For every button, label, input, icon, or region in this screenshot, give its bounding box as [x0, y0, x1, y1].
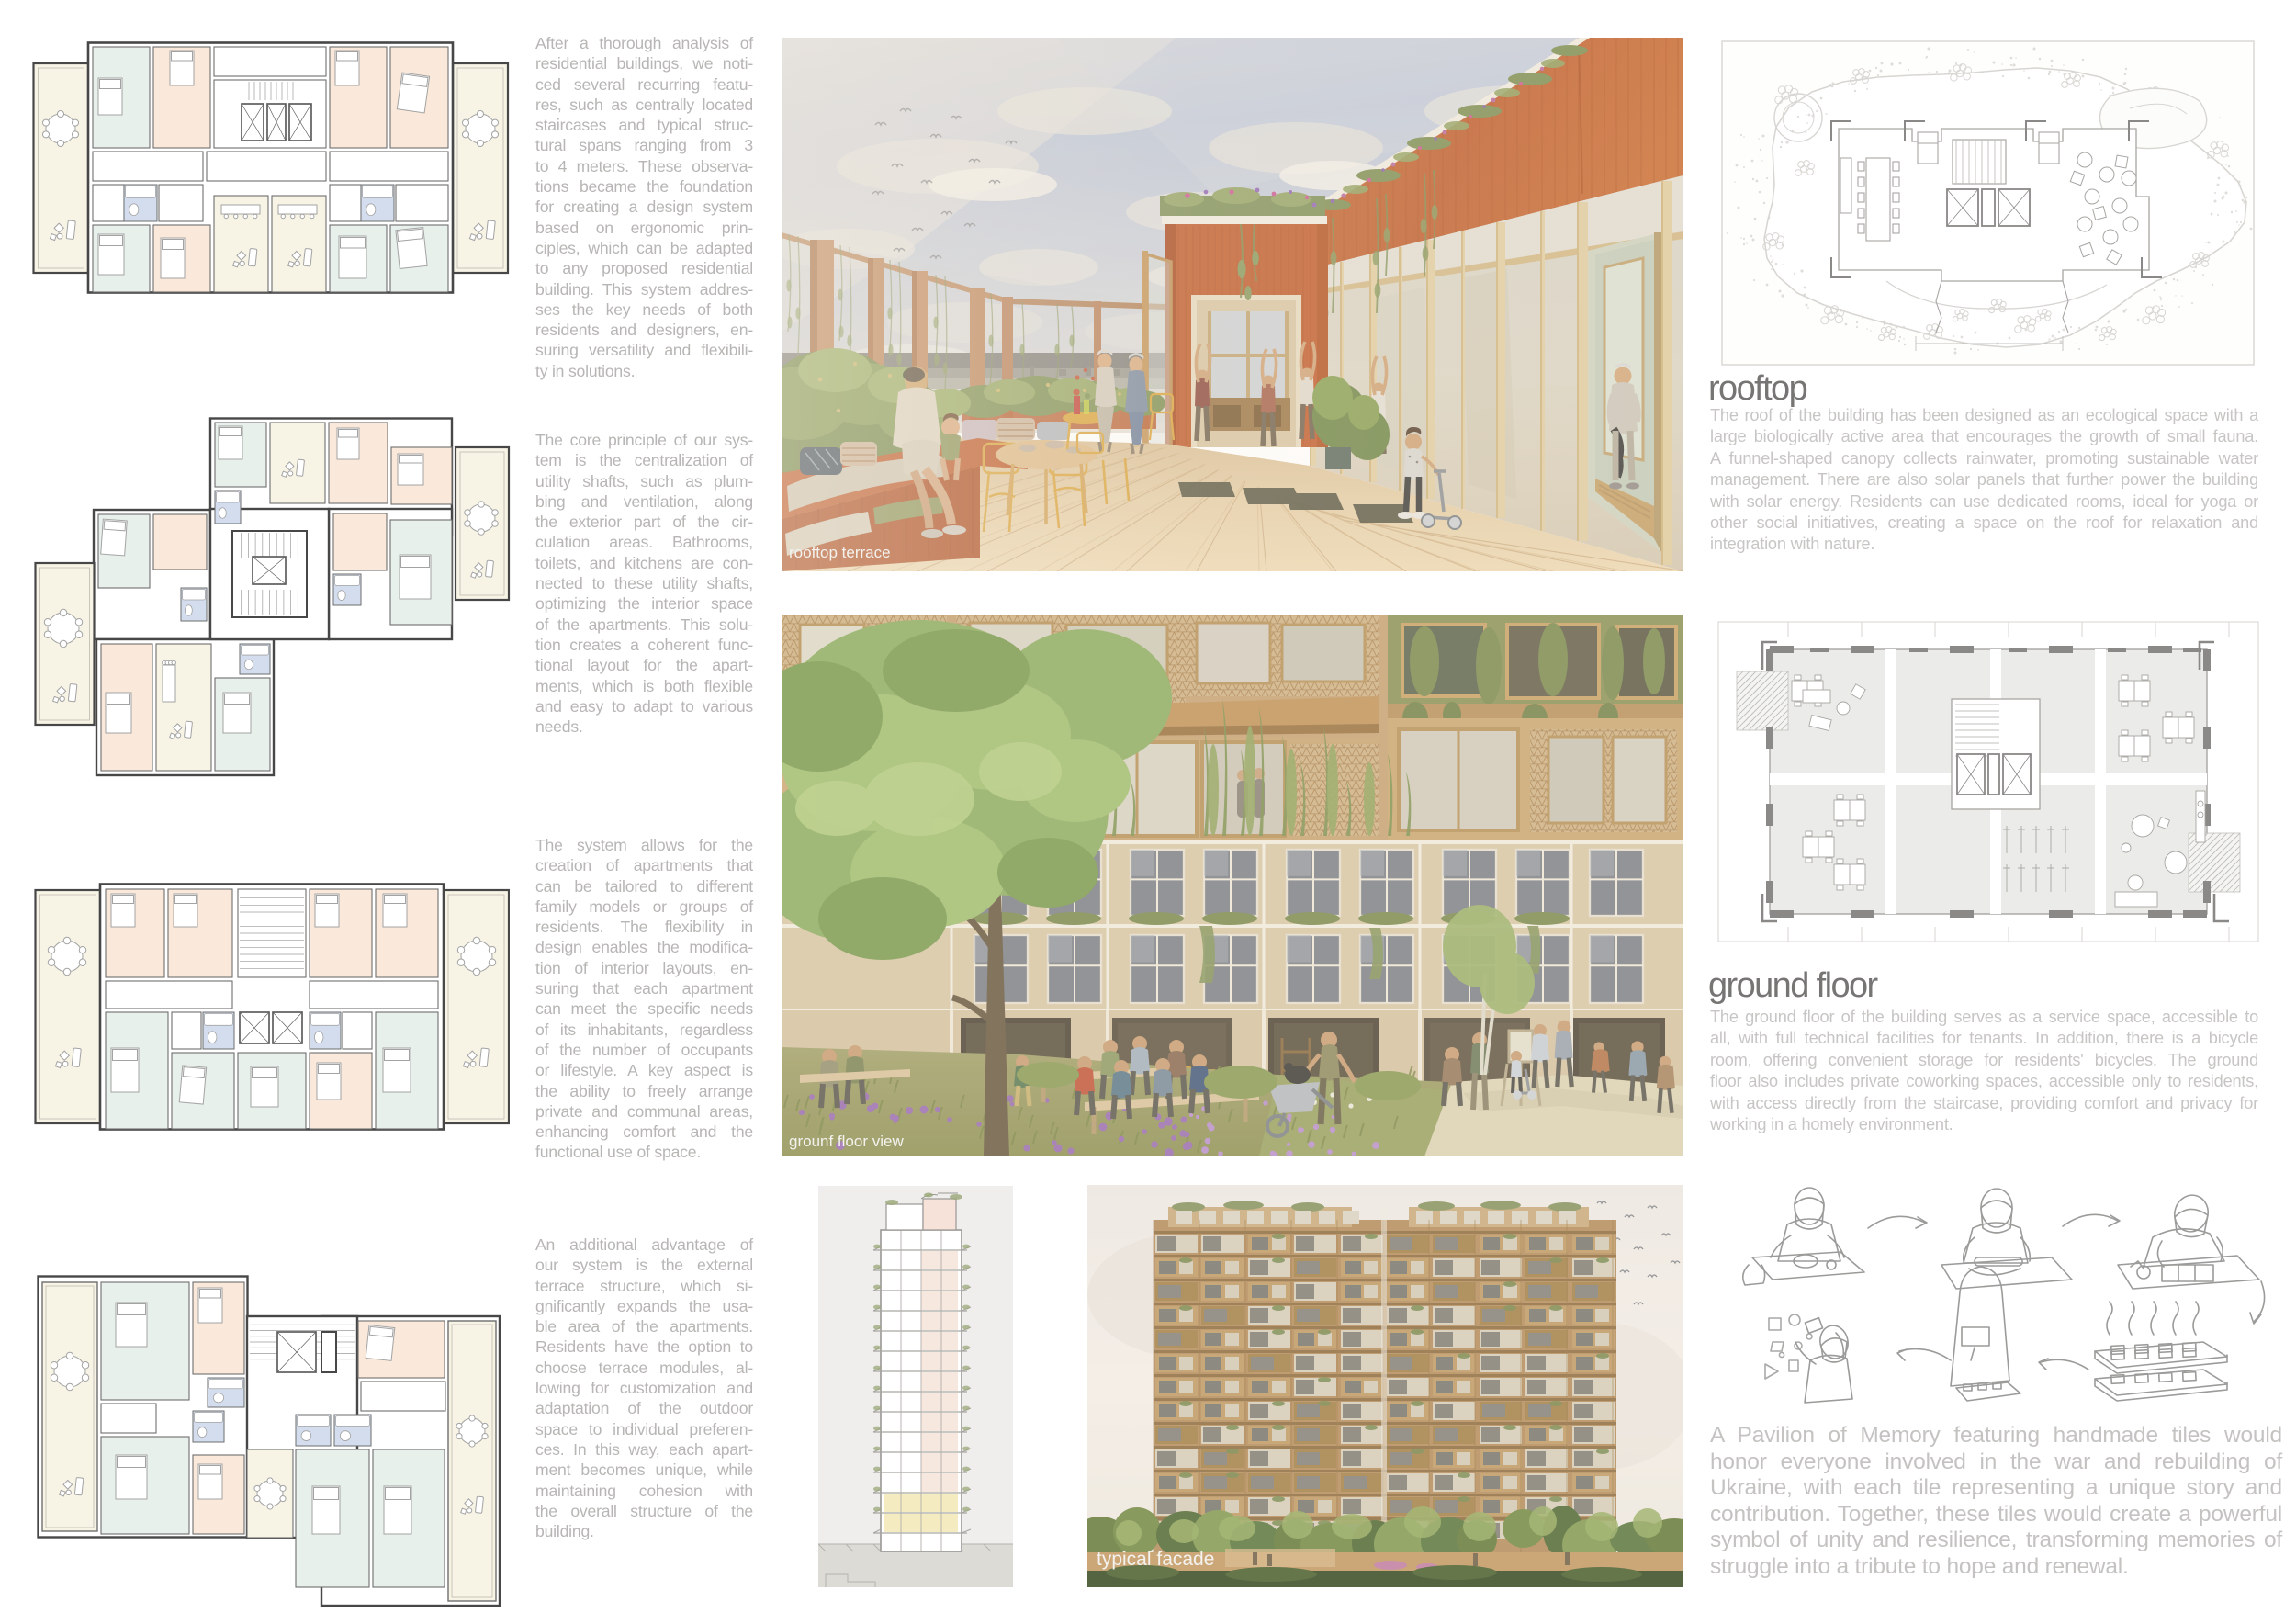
svg-text:grounf floor view: grounf floor view	[789, 1133, 904, 1150]
svg-text:typical facade: typical facade	[1097, 1549, 1214, 1570]
svg-text:rooftop terrace: rooftop terrace	[789, 544, 891, 561]
